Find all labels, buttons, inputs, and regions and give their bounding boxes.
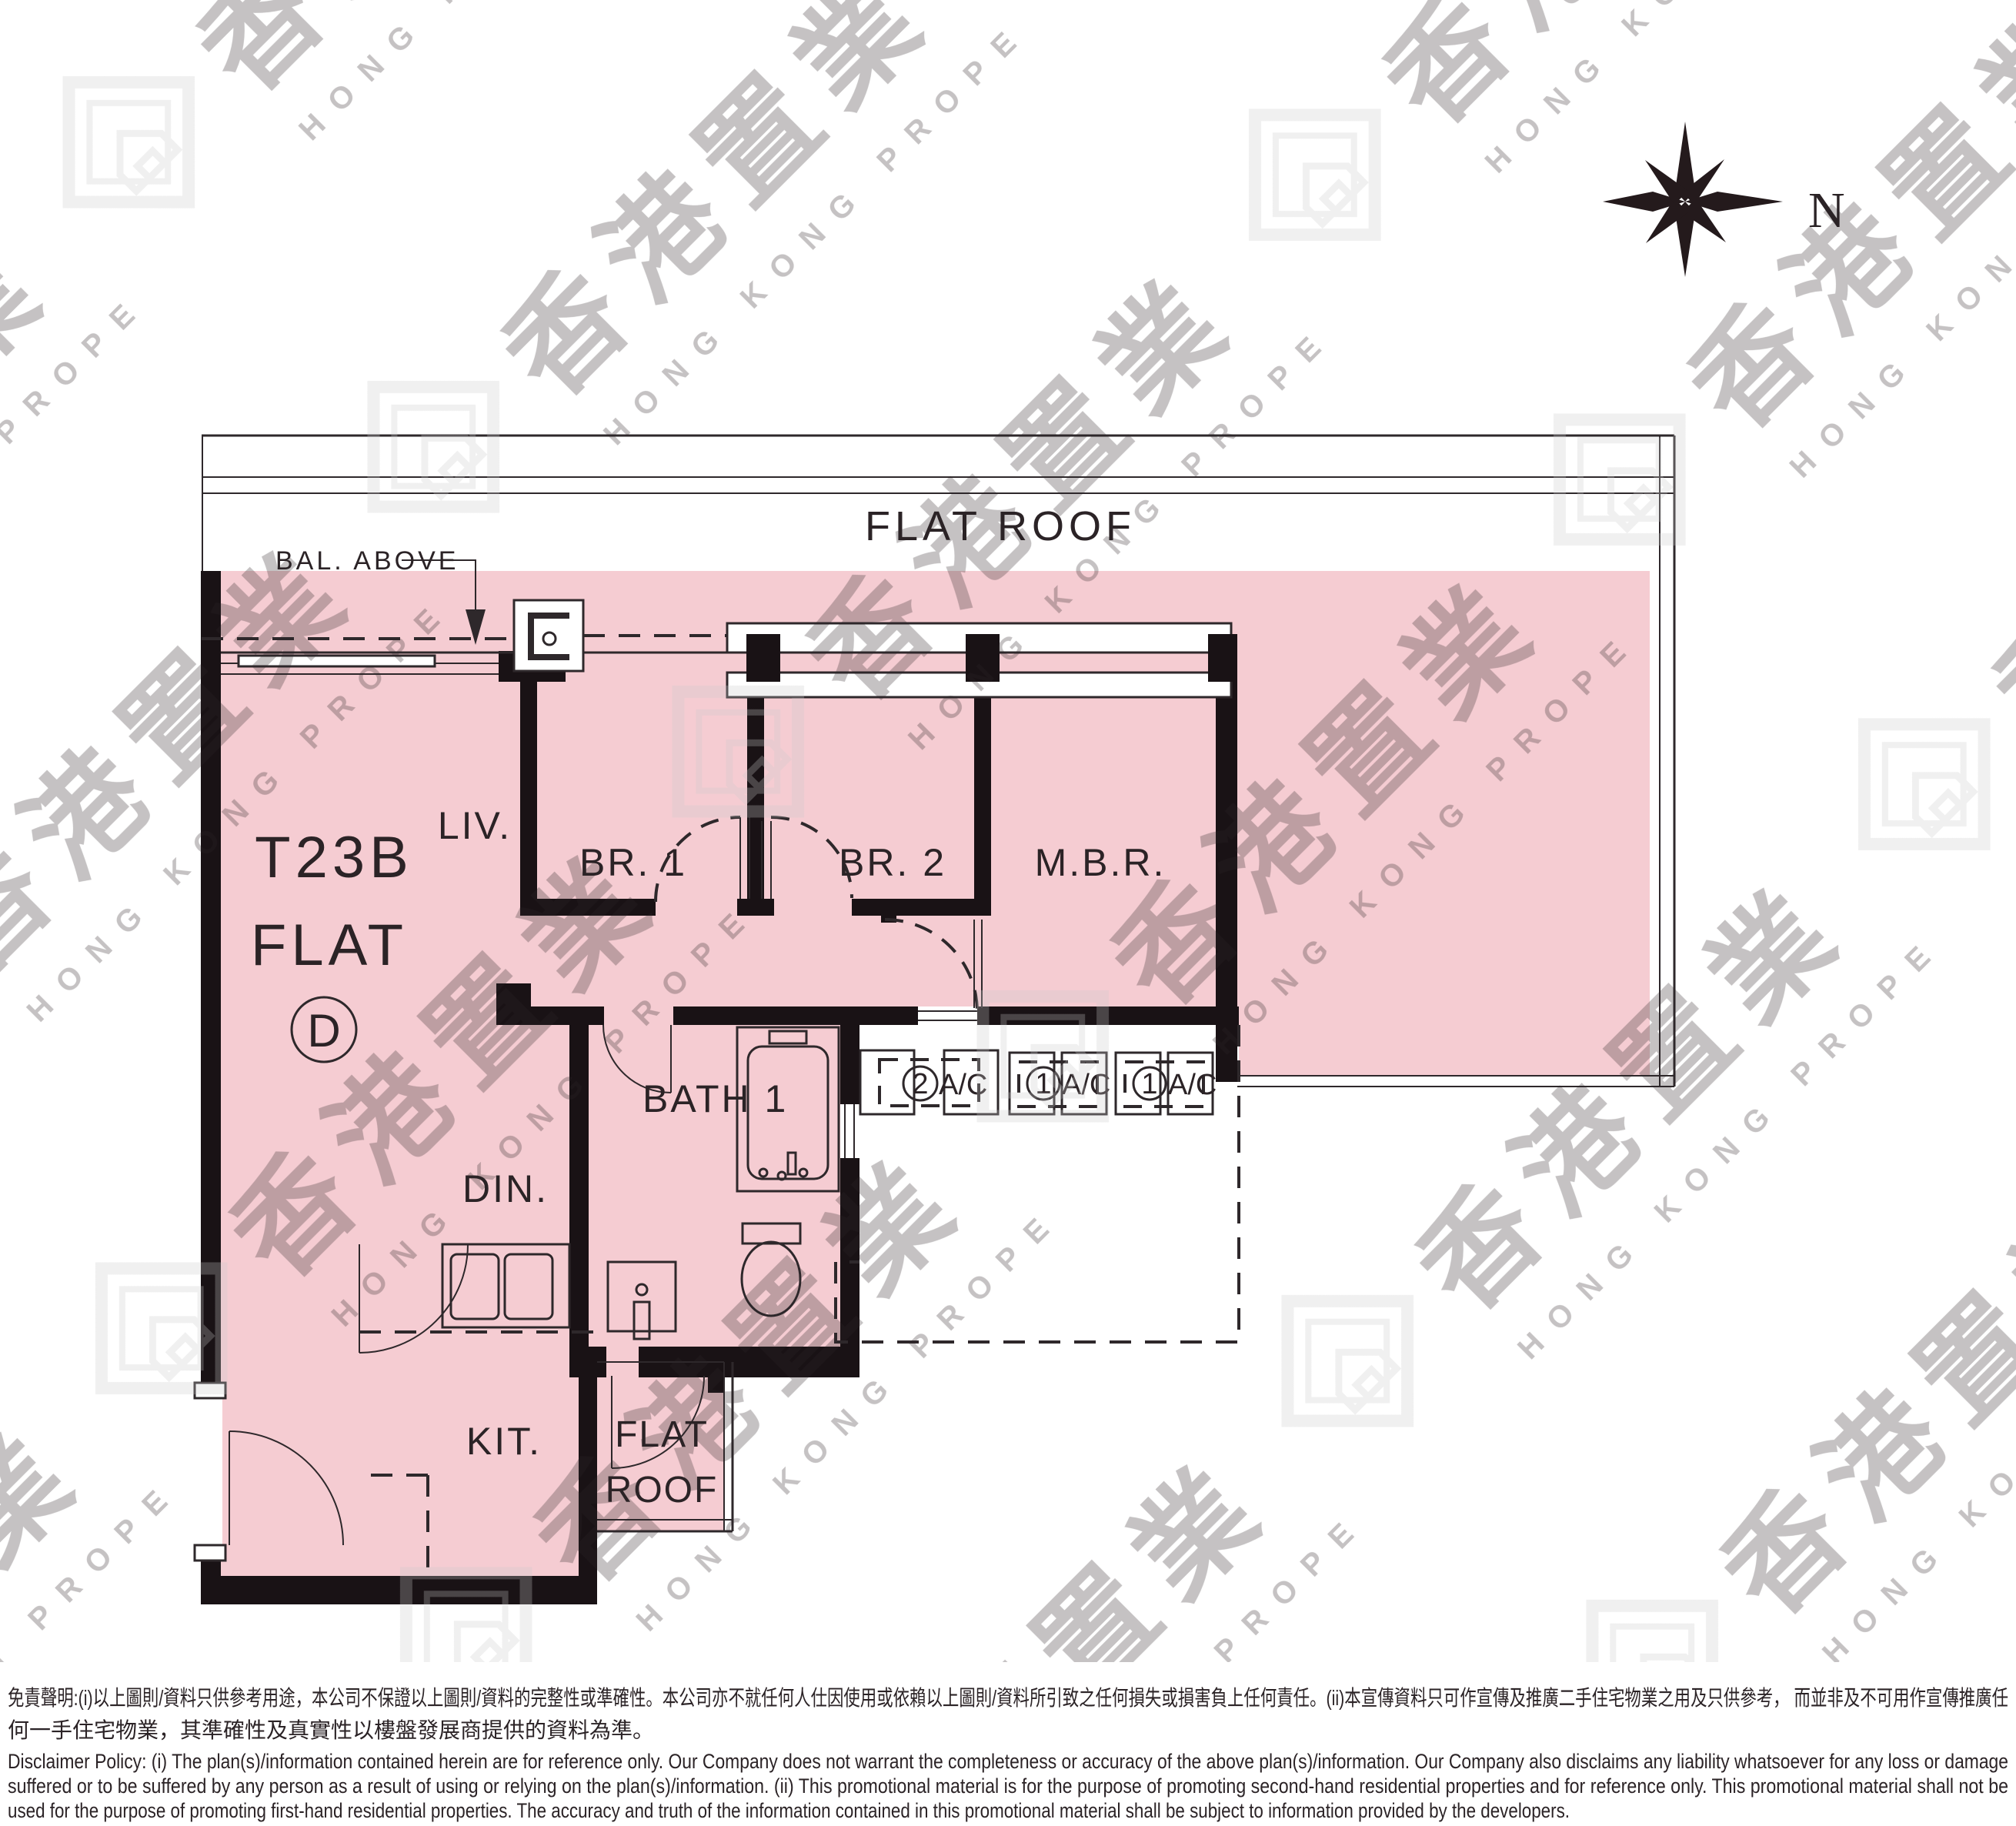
disclaimer-en-line3: used for the purpose of promoting first-… [8,1799,1570,1822]
disclaimer-en-line1: Disclaimer Policy: (i) The plan(s)/infor… [8,1750,2008,1773]
disclaimer-en-line2: suffered or to be suffered by any person… [8,1774,2008,1798]
disclaimer: 免責聲明:(i)以上圖則/資料只供參考用途，本公司不保證以上圖則/資料的完整性或… [8,1686,2008,1822]
watermark-layer [0,0,2016,1662]
disclaimer-zh-line2: 何一手住宅物業，其準確性及真實性以樓盤發展商提供的資料為準。 [8,1718,654,1742]
floorplan-page: 香港置業 HONG KONG PROPERTY [0,0,2016,1826]
floorplan-canvas: 香港置業 HONG KONG PROPERTY [0,0,2016,1826]
disclaimer-zh-line1: 免責聲明:(i)以上圖則/資料只供參考用途，本公司不保證以上圖則/資料的完整性或… [8,1686,2008,1710]
